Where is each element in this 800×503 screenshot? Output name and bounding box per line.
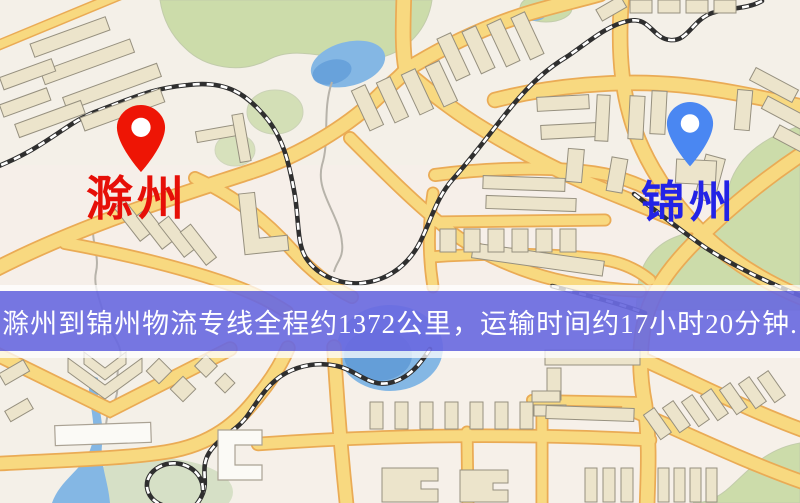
origin-pin-hole xyxy=(131,118,150,137)
logistics-route-map: 滁州 锦州 滁州到锦州物流专线全程约1372公里，运输时间约17小时20分钟. xyxy=(0,0,800,503)
route-summary-text: 滁州到锦州物流专线全程约1372公里，运输时间约17小时20分钟. xyxy=(0,291,800,351)
origin-city-label: 滁州 xyxy=(86,177,188,224)
map-canvas xyxy=(0,0,800,503)
destination-pin-hole xyxy=(681,114,699,132)
info-banner: 滁州到锦州物流专线全程约1372公里，运输时间约17小时20分钟. xyxy=(0,285,800,358)
destination-city-label: 锦州 xyxy=(641,181,737,225)
